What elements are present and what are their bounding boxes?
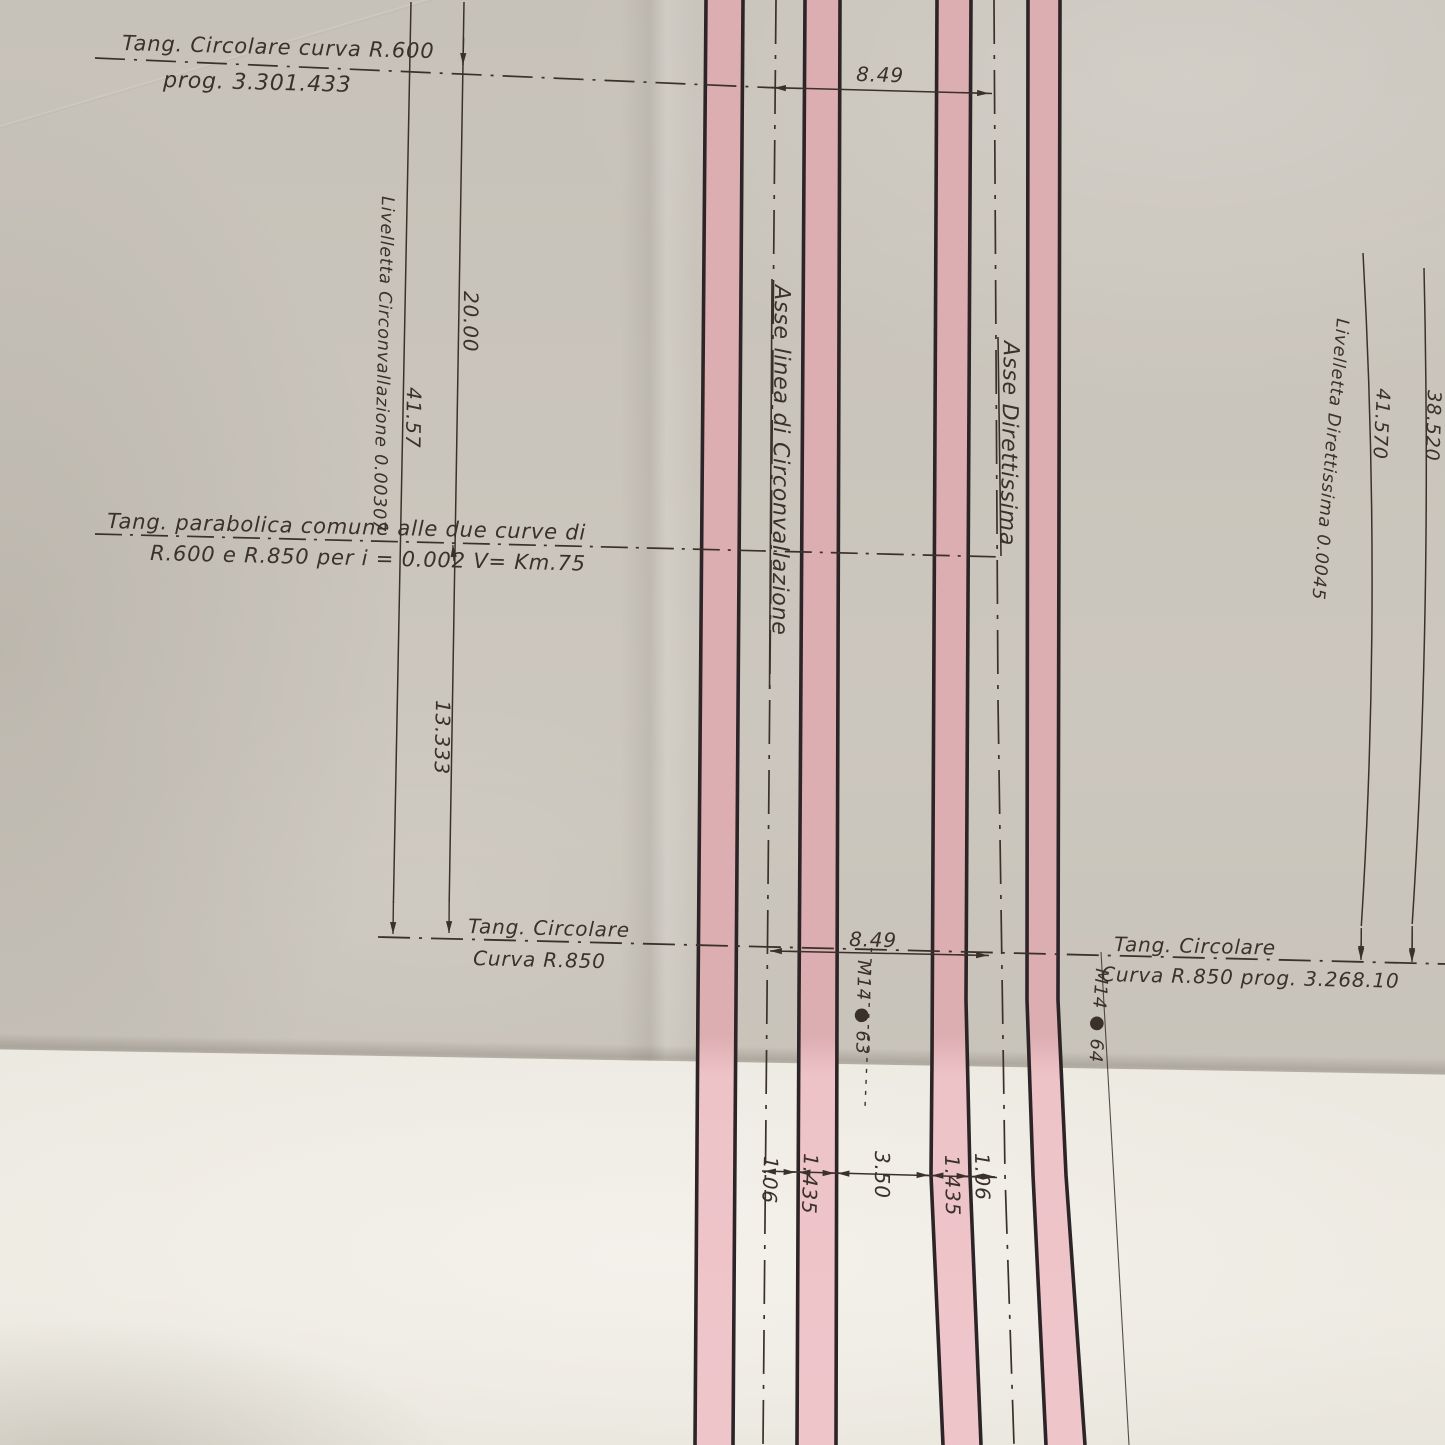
dim-849-top-label: 8.49 [856,62,904,87]
dim-13-333-label: 13.333 [430,700,455,775]
gauge-label-1-06-left: 1.06 [757,1156,783,1205]
dim-849-top-left-arrow [774,88,801,89]
livelletta-circonvallazione-label: Livelletta Circonvallazione 0.00307 [368,196,397,532]
gauge-label-1-435-right: 1.435 [940,1155,965,1217]
left-dimension-line-2-top-arrow [463,38,464,65]
tangent-r850-right-label-line1: Tang. Circolare [1114,932,1276,960]
dim-38-520-label: 38.520 [1421,390,1445,462]
tangent-r850-right-label-line2: Curva R.850 prog. 3.268.10 [1101,962,1400,993]
gauge-label-1-435-left: 1.435 [797,1153,823,1215]
drawing-labels: Tang. Circolare curva R.600 prog. 3.301.… [107,31,1445,1216]
dim-41-570-label: 41.570 [1368,388,1394,460]
livelletta-direttissima-label: Livelletta Direttissima 0.0045 [1307,318,1352,601]
drawing-linework: Tang. Circolare curva R.600 prog. 3.301.… [0,0,1445,1445]
track-bands [695,0,1085,1445]
dim-20-00-label: 20.00 [458,291,483,352]
dim-849-bottom-right-arrow [957,955,988,956]
reference-lines [95,58,1445,1445]
tangent-r600-label-line1: Tang. Circolare curva R.600 [122,31,435,63]
tangent-r850-left-label-line1: Tang. Circolare [468,914,630,942]
circonvallazione-axis-line [763,0,776,1445]
tangent-r600-label-line2: prog. 3.301.433 [162,68,352,98]
dim-849-top-right-arrow [962,93,989,94]
asse-direttissima-label: Asse Direttissima [994,339,1023,546]
dim-849-bottom-left-arrow [770,951,801,952]
gauge-label-3-50: 3.50 [870,1151,894,1199]
survey-marker-64-label: M14 ● 64 [1084,968,1112,1064]
survey-marker-63-label: M14 ● 63 [851,960,874,1055]
left-dimension-line-1 [393,2,411,903]
tangent-r850-left-label-line2: Curva R.850 [473,946,606,973]
dimension-lines [393,2,1426,1178]
dim-41-57-label: 41.57 [401,387,426,449]
dim-849-bottom-label: 8.49 [849,927,897,952]
tangent-parabolica-label-line2: R.600 e R.850 per i = 0.002 V= Km.75 [150,541,586,576]
gauge-label-1-06-right: 1.06 [970,1153,995,1201]
tangent-parabolica-label-line1: Tang. parabolica comune alle due curve d… [107,509,586,545]
direttissima-axis-line [994,0,1014,1445]
photo-of-railway-drawing: Tang. Circolare curva R.600 prog. 3.301.… [0,0,1445,1445]
right-dimension-line-2 [1412,268,1426,924]
right-dimension-line-1 [1361,253,1372,926]
asse-circonvallazione-label: Asse linea di Circonvallazione [767,283,794,636]
